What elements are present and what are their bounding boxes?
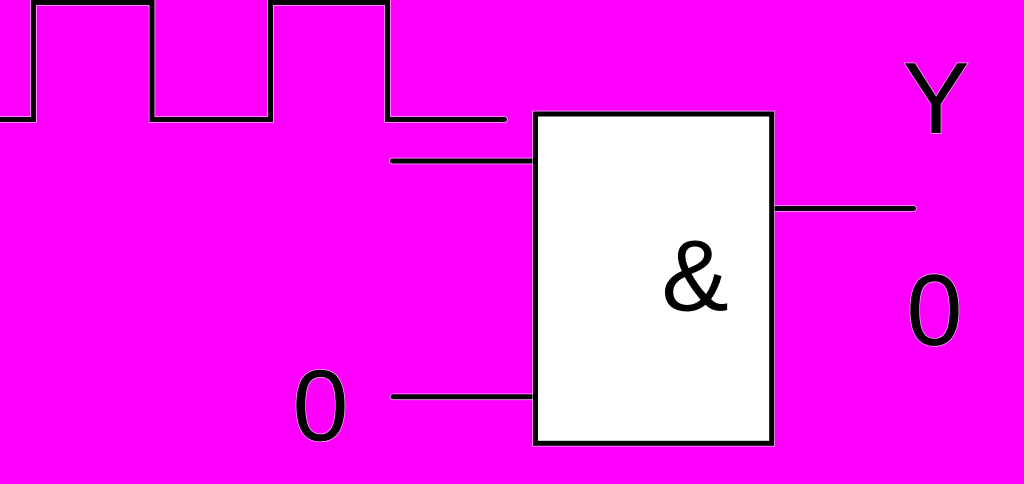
svg-text:Y: Y [902,43,969,155]
svg-text:0: 0 [906,255,962,367]
svg-text:0: 0 [292,351,348,463]
svg-text:&: & [661,221,728,333]
